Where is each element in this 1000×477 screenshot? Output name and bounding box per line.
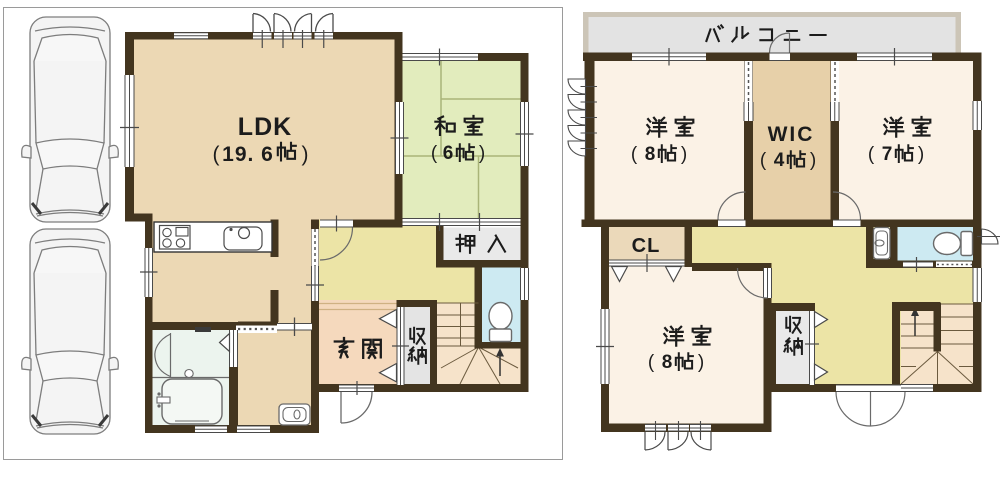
svg-text:(: (	[213, 143, 220, 166]
svg-text:6: 6	[443, 143, 454, 164]
svg-text:): )	[698, 352, 704, 373]
svg-text:4: 4	[774, 150, 785, 171]
svg-text:7: 7	[882, 144, 893, 165]
svg-text:(: (	[868, 144, 875, 165]
svg-text:8: 8	[645, 144, 656, 165]
svg-text:): )	[810, 150, 816, 171]
svg-text:CL: CL	[632, 235, 661, 257]
svg-text:): )	[302, 143, 309, 166]
svg-text:(: (	[431, 143, 438, 164]
svg-text:WIC: WIC	[768, 123, 815, 146]
svg-text:): )	[479, 143, 485, 164]
svg-text:): )	[681, 144, 687, 165]
svg-text:(: (	[760, 150, 767, 171]
svg-text:19. 6: 19. 6	[222, 143, 274, 166]
svg-text:): )	[918, 144, 924, 165]
svg-text:8: 8	[662, 352, 673, 373]
svg-text:(: (	[648, 352, 655, 373]
svg-text:(: (	[631, 144, 638, 165]
svg-text:LDK: LDK	[238, 113, 292, 141]
